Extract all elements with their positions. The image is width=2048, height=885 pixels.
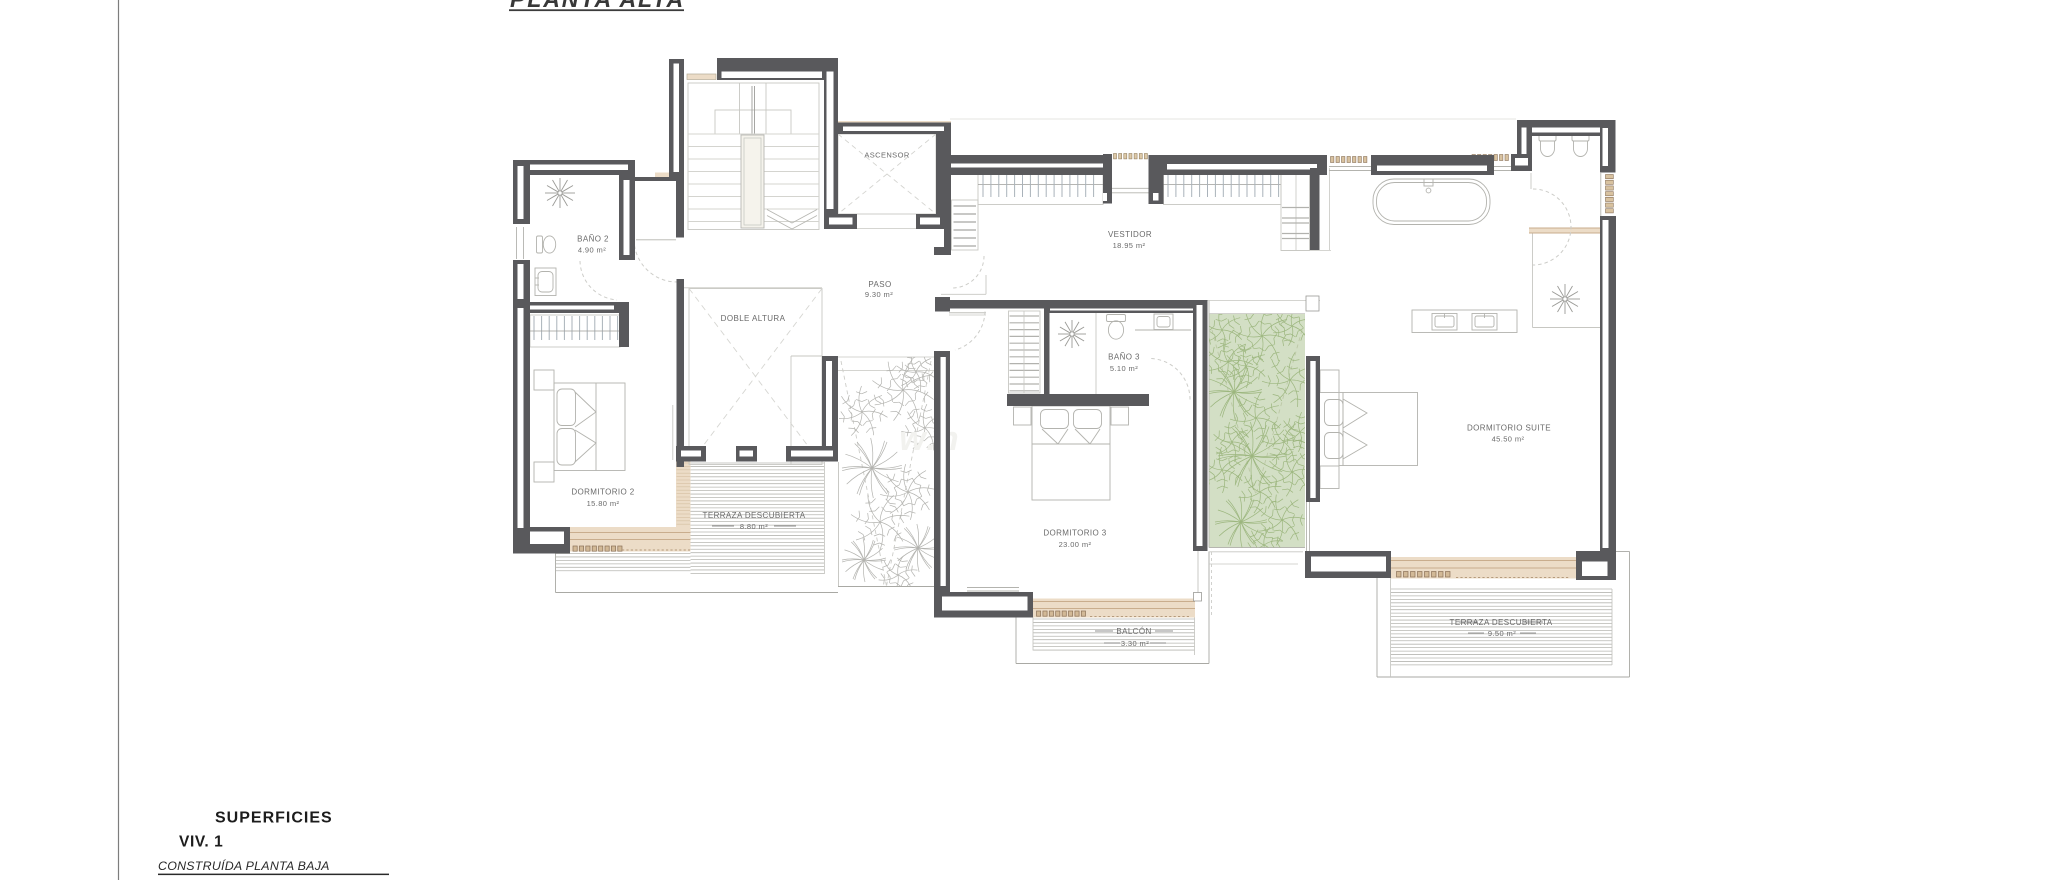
svg-text:8.80 m²: 8.80 m² (740, 522, 768, 531)
svg-text:18.95 m²: 18.95 m² (1113, 241, 1146, 250)
svg-text:3.30 m²: 3.30 m² (1121, 639, 1149, 648)
svg-text:15.80 m²: 15.80 m² (587, 499, 620, 508)
svg-text:9.50 m²: 9.50 m² (1488, 629, 1516, 638)
svg-text:DORMITORIO 2: DORMITORIO 2 (571, 488, 634, 497)
svg-text:VIV. 1: VIV. 1 (179, 834, 223, 851)
svg-text:DORMITORIO SUITE: DORMITORIO SUITE (1467, 424, 1551, 433)
svg-text:4.90 m²: 4.90 m² (578, 246, 606, 255)
svg-text:ASCENSOR: ASCENSOR (864, 151, 909, 160)
svg-text:BAÑO 2: BAÑO 2 (577, 235, 609, 244)
svg-text:CONSTRUÍDA PLANTA BAJA: CONSTRUÍDA PLANTA BAJA (158, 858, 330, 873)
svg-text:w.n: w.n (899, 420, 960, 458)
svg-text:VESTIDOR: VESTIDOR (1108, 230, 1152, 239)
svg-text:5.10 m²: 5.10 m² (1110, 364, 1138, 373)
svg-text:BAÑO 3: BAÑO 3 (1108, 353, 1140, 362)
svg-text:9.30 m²: 9.30 m² (865, 290, 893, 299)
svg-text:DORMITORIO 3: DORMITORIO 3 (1043, 529, 1106, 538)
svg-text:BALCÓN: BALCÓN (1116, 627, 1151, 636)
svg-text:45.50 m²: 45.50 m² (1492, 435, 1525, 444)
svg-text:SUPERFICIES: SUPERFICIES (215, 810, 333, 827)
svg-text:DOBLE ALTURA: DOBLE ALTURA (721, 314, 786, 323)
svg-text:23.00 m²: 23.00 m² (1059, 540, 1092, 549)
svg-text:TERRAZA DESCUBIERTA: TERRAZA DESCUBIERTA (703, 511, 806, 520)
svg-text:PASO: PASO (868, 280, 891, 289)
svg-text:TERRAZA DESCUBIERTA: TERRAZA DESCUBIERTA (1450, 618, 1553, 627)
